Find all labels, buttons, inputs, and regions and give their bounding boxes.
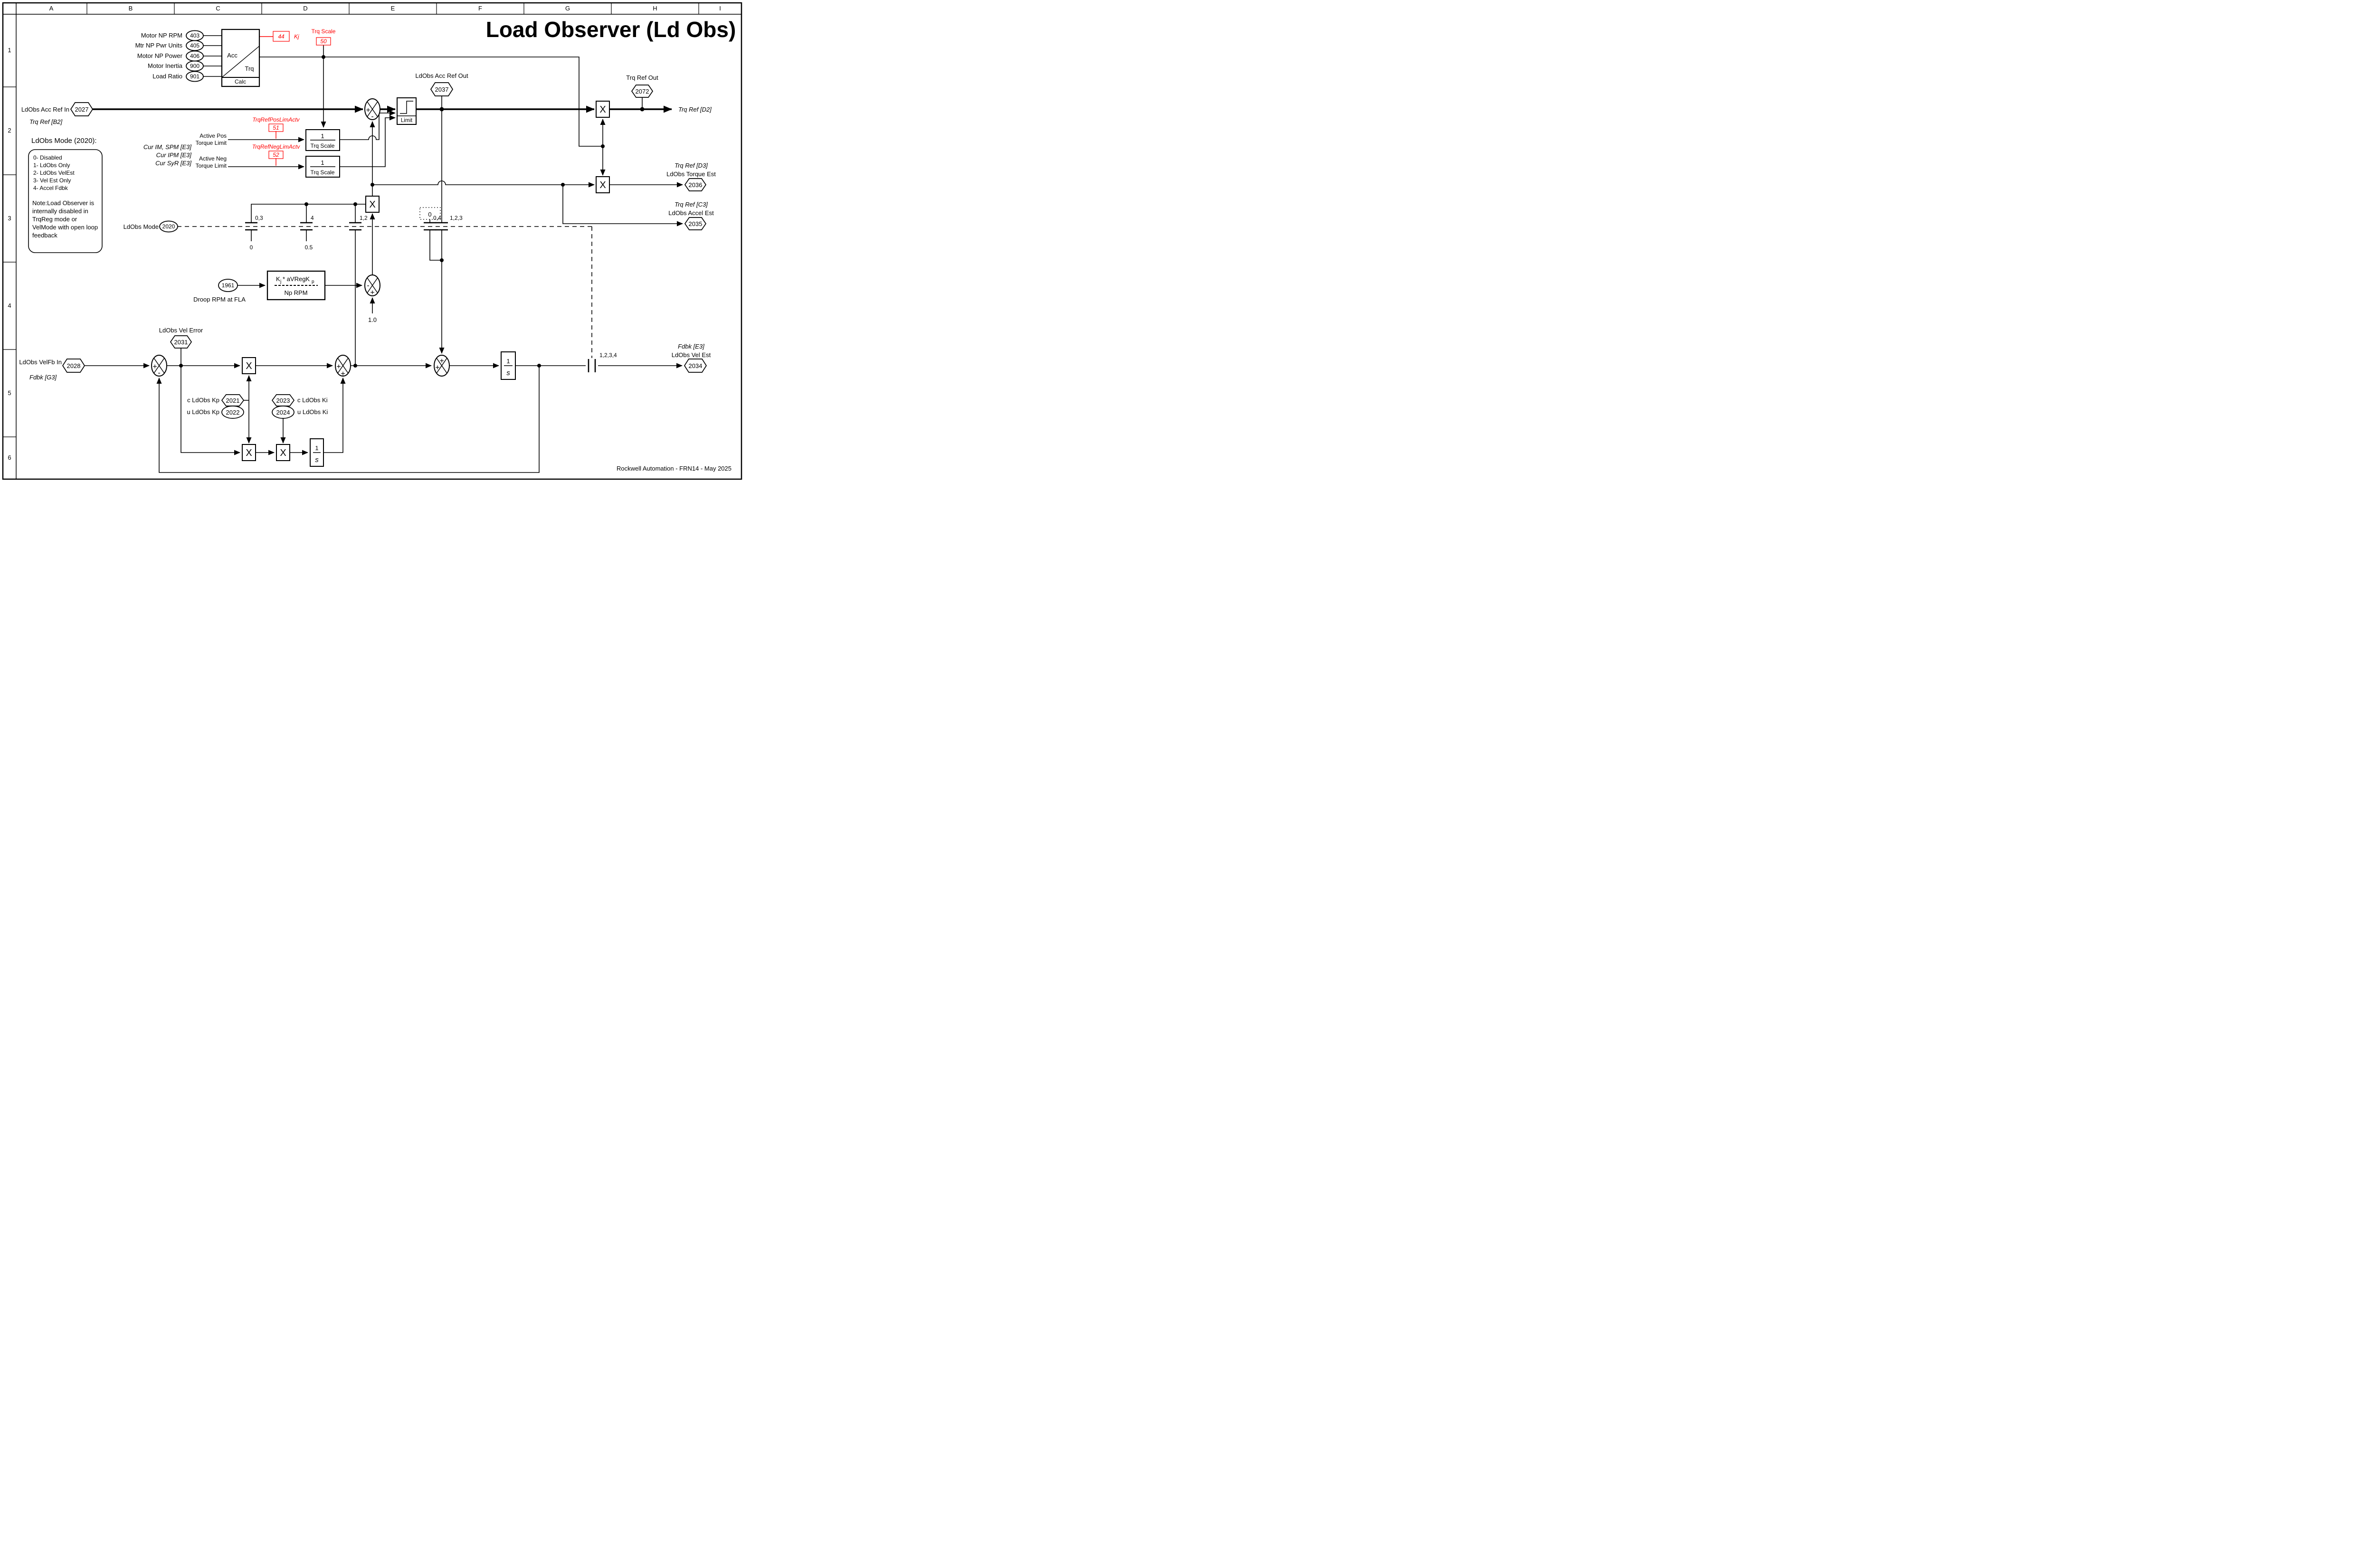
row-4: 4 [8,302,11,309]
signal-wires [85,36,683,472]
wire-neglim-to-limit [340,118,395,167]
col-D: D [303,5,307,12]
param-2021: 2021 [226,397,240,404]
droop-section: 1961 Droop RPM at FLA K j * aVRegK p Np … [193,271,380,323]
wire-velest-feedback [159,366,539,472]
param-2020: 2020 [162,223,175,230]
wire-mode-bus [251,204,366,223]
bigsum-plus-left: + [435,364,439,372]
param-2023: 2023 [276,397,290,404]
sw-03-label: 0,3 [255,215,263,221]
div2-num: 1 [321,159,324,166]
mode-note-3: VelMode with open loop [32,224,98,231]
accel-est-label: LdObs Accel Est [668,209,714,217]
calc-input-params: Motor NP RPM 403 Mtr NP Pwr Units 405 Mo… [135,31,203,82]
mode-opt-3: 3- Vel Est Only [33,177,71,184]
int-ki-den: s [315,456,319,464]
sw-04-label: 0,4 [433,215,441,221]
param-2022: 2022 [226,409,240,416]
mode-opt-0: 0- Disabled [33,154,62,161]
droop-num-mid: * aVRegK [283,275,310,283]
int-main-num: 1 [506,358,510,365]
integrator-ki: 1 s [310,439,323,466]
vel-error-label: LdObs Vel Error [159,327,203,334]
sw-12-label: 1,2 [360,215,368,221]
int-ki-num: 1 [315,444,318,452]
mult-ki2-x: X [280,448,286,458]
droop-num-ksub: j [280,279,281,284]
sum-junction-main: + - [365,99,380,121]
droop-sum-minus: - [367,282,369,290]
torque-est-label: LdObs Torque Est [666,170,716,178]
mult-torque-est-x: X [599,180,606,190]
mode-heading: LdObs Mode (2020): [31,137,97,145]
int-main-den: s [506,369,510,377]
param-2036: 2036 [689,181,703,189]
input-label-901: Load Ratio [152,73,182,80]
cur-syr-label: Cur SyR [E3] [155,160,191,167]
div1-den: Trq Scale [311,142,335,149]
param-2024: 2024 [276,409,290,416]
vel-est-label: LdObs Vel Est [672,351,711,359]
kj-label: Kj [294,33,299,40]
droop-den: Np RPM [284,289,307,296]
torque-limit-section: TrqRefPosLimActv 51 TrqRefNegLimActv 52 … [143,116,340,177]
zero-const: 0 [428,211,431,218]
row-ticks [3,87,16,437]
input-label-403: Motor NP RPM [141,32,182,39]
droop-label: Droop RPM at FLA [193,296,246,303]
div-trq-scale-neg: 1 Trq Scale [306,156,340,177]
calc-calc-label: Calc [235,78,246,85]
load-observer-diagram: A B C D E F G H I 1 2 3 4 5 6 Load Obser… [0,0,745,482]
sum-junction-droop: - + [365,275,380,297]
div1-num: 1 [321,132,324,140]
velocity-loop: LdObs VelFb In 2028 Fdbk [G3] + - LdObs … [19,327,515,466]
neg-lim-tag: TrqRefNegLimActv [252,143,300,150]
sw-03-value: 0 [250,244,253,251]
col-B: B [129,5,133,12]
param-2072: 2072 [636,88,649,95]
param-901: 901 [190,73,199,80]
trqref-out-label: Trq Ref Out [626,74,658,81]
div2-den: Trq Scale [311,169,335,176]
accref-out-label: LdObs Acc Ref Out [415,72,468,79]
column-letters: A B C D E F G H I [49,5,721,12]
param-403: 403 [190,32,199,39]
calc-acc-label: Acc [227,52,237,59]
col-A: A [49,5,54,12]
mult-mode-x: X [369,199,375,210]
mode-label: LdObs Mode [123,223,159,230]
sw-4-label: 4 [311,215,314,221]
kp-u-label: u LdObs Kp [187,408,219,416]
trq-scale-label: Trq Scale [312,28,336,35]
mode-note-1: internally disabled in [32,208,88,215]
col-C: C [216,5,220,12]
mode-opt-4: 4- Accel Fdbk [33,185,68,191]
wire-mode-dashed [177,227,592,358]
sum2-plus-left: + [336,363,341,371]
input-label-900: Motor Inertia [148,62,183,69]
sw-4-value: 0.5 [305,244,313,251]
switch-1234 [589,359,595,372]
calc-trq-label: Trq [245,65,254,72]
kp-c-label: c LdObs Kp [187,397,219,404]
col-F: F [478,5,482,12]
sw-1234-label: 1,2,3,4 [599,352,617,359]
kj-value: 44 [278,33,285,40]
input-label-405: Mtr NP Pwr Units [135,42,183,49]
row-6: 6 [8,454,11,461]
footer-note: Rockwell Automation - FRN14 - May 2025 [617,465,731,472]
droop-num-k: K [276,275,280,283]
droop-num-psub: p [312,279,314,284]
wires-calc-inputs [203,36,222,76]
param-2027: 2027 [75,106,89,113]
wire-accel-est [563,185,683,224]
limit-block: Limit [397,98,416,124]
div-trq-scale-pos: 1 Trq Scale [306,130,340,151]
param-2034: 2034 [689,362,703,369]
param-900: 900 [190,63,199,69]
col-E: E [391,5,395,12]
bigsum-plus-top: + [439,357,444,365]
wires-hex-stubs [181,96,642,366]
wire-switch-const-leads [251,230,306,241]
pos-lim-tag: TrqRefPosLimActv [252,116,300,123]
row-3: 3 [8,215,11,222]
estimate-outputs: X Trq Ref [D3] LdObs Torque Est 2036 Trq… [596,162,716,372]
ki-u-label: u LdObs Ki [297,408,328,416]
pos-lim-value: 51 [273,124,279,131]
col-H: H [653,5,657,12]
main-path: LdObs Acc Ref In 2027 Trq Ref [B2] + - L… [21,72,712,125]
cur-im-label: Cur IM, SPM [E3] [143,143,192,151]
unity-label: 1.0 [368,316,377,323]
velfb-in-label: LdObs VelFb In [19,359,62,366]
fdbk-e3-label: Fdbk [E3] [678,343,704,350]
sum-junction-big: + + [434,355,449,376]
trqref-d2-label: Trq Ref [D2] [678,106,712,113]
calc-diagonal [222,46,259,77]
page-title: Load Observer (Ld Obs) [486,17,736,42]
mult-trqref-x: X [599,104,606,115]
ki-c-label: c LdObs Ki [297,397,328,404]
limit-label: Limit [401,118,413,123]
param-2031: 2031 [174,339,188,346]
mode-opt-1: 1- LdObs Only [33,162,70,169]
neg-lim-value: 52 [273,151,279,158]
active-pos-l2: Torque Limit [196,140,227,146]
fdbk-g3-label: Fdbk [G3] [29,374,57,381]
col-I: I [719,5,721,12]
active-pos-l1: Active Pos [199,132,227,139]
mode-note-0: Note:Load Observer is [32,199,95,207]
param-2035: 2035 [689,220,703,227]
droop-sum-plus: + [370,289,374,297]
row-1: 1 [8,47,11,54]
trq-scale-value: 50 [320,38,327,45]
param-405: 405 [190,42,199,49]
wire-zero-branch [430,219,442,260]
sw-123-label: 1,2,3 [450,215,463,221]
trqref-d3-label: Trq Ref [D3] [674,162,708,169]
row-2: 2 [8,127,11,134]
cur-ipm-label: Cur IPM [E3] [156,151,192,159]
mode-note-2: TrqReg mode or [32,216,77,223]
row-numbers: 1 2 3 4 5 6 [8,47,11,461]
trqref-b2-label: Trq Ref [B2] [29,118,63,125]
input-label-406: Motor NP Power [137,52,183,59]
param-2037: 2037 [435,86,449,93]
sum-junction-velerr: + - [152,355,167,377]
trqref-c3-label: Trq Ref [C3] [674,201,708,208]
mode-opt-2: 2- LdObs VelEst [33,170,75,176]
row-5: 5 [8,389,11,397]
sum1-plus: + [366,106,370,114]
sum2-plus-bottom: + [341,370,345,378]
param-2028: 2028 [67,362,81,369]
velsum-plus: + [152,363,157,371]
accref-in-label: LdObs Acc Ref In [21,106,69,113]
mult-ki1-x: X [246,448,252,458]
col-G: G [565,5,570,12]
param-1961: 1961 [222,282,235,289]
velsum-minus: - [158,369,160,377]
sum-junction-2: + + [335,355,351,378]
diagram-page: A B C D E F G H I 1 2 3 4 5 6 Load Obser… [0,0,745,482]
wire-to-torque-est-mult [372,181,594,185]
param-406: 406 [190,53,199,59]
active-neg-l1: Active Neg [199,155,227,162]
sum1-minus: - [371,113,373,121]
mult-kp-x: X [246,361,252,371]
active-neg-l2: Torque Limit [196,162,227,169]
integrator-main: 1 s [501,352,515,379]
mode-note-4: feedback [32,232,57,239]
